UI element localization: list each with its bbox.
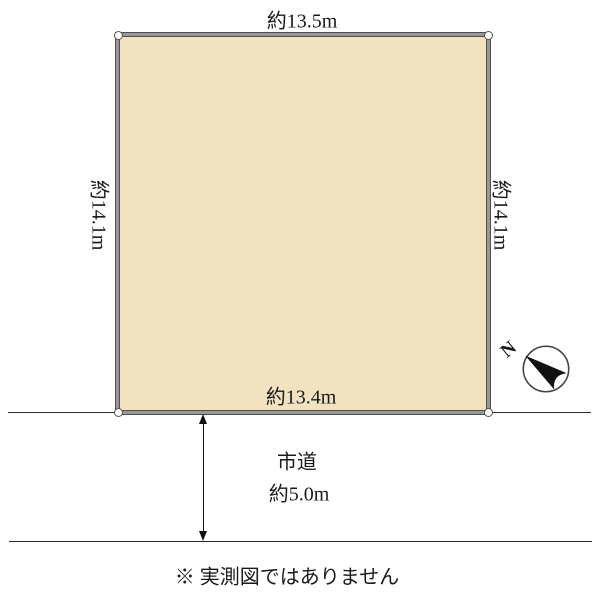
dimension-label-right: 約14.1m (489, 180, 518, 251)
disclaimer-text: ※ 実測図ではありません (175, 561, 399, 590)
road-width-label: 約5.0m (269, 478, 330, 507)
land-plot-diagram: 約13.5m 約14.1m 約14.1m 約13.4m 市道 約5.0m N ※… (0, 0, 600, 600)
corner-dot-bottom-right (484, 408, 493, 417)
land-parcel (116, 33, 490, 414)
dimension-label-left: 約14.1m (87, 180, 116, 251)
north-compass-icon (515, 338, 577, 400)
road-width-arrow-up-icon (199, 414, 207, 424)
corner-dot-top-left (114, 31, 123, 40)
road-width-arrow-line (203, 418, 204, 537)
dimension-label-top: 約13.5m (267, 5, 338, 34)
corner-dot-bottom-left (114, 408, 123, 417)
road-lower-edge-line (9, 541, 592, 542)
road-name-label: 市道 (277, 446, 317, 475)
road-width-arrow-down-icon (199, 531, 207, 541)
corner-dot-top-right (484, 31, 493, 40)
dimension-label-bottom: 約13.4m (266, 381, 337, 410)
